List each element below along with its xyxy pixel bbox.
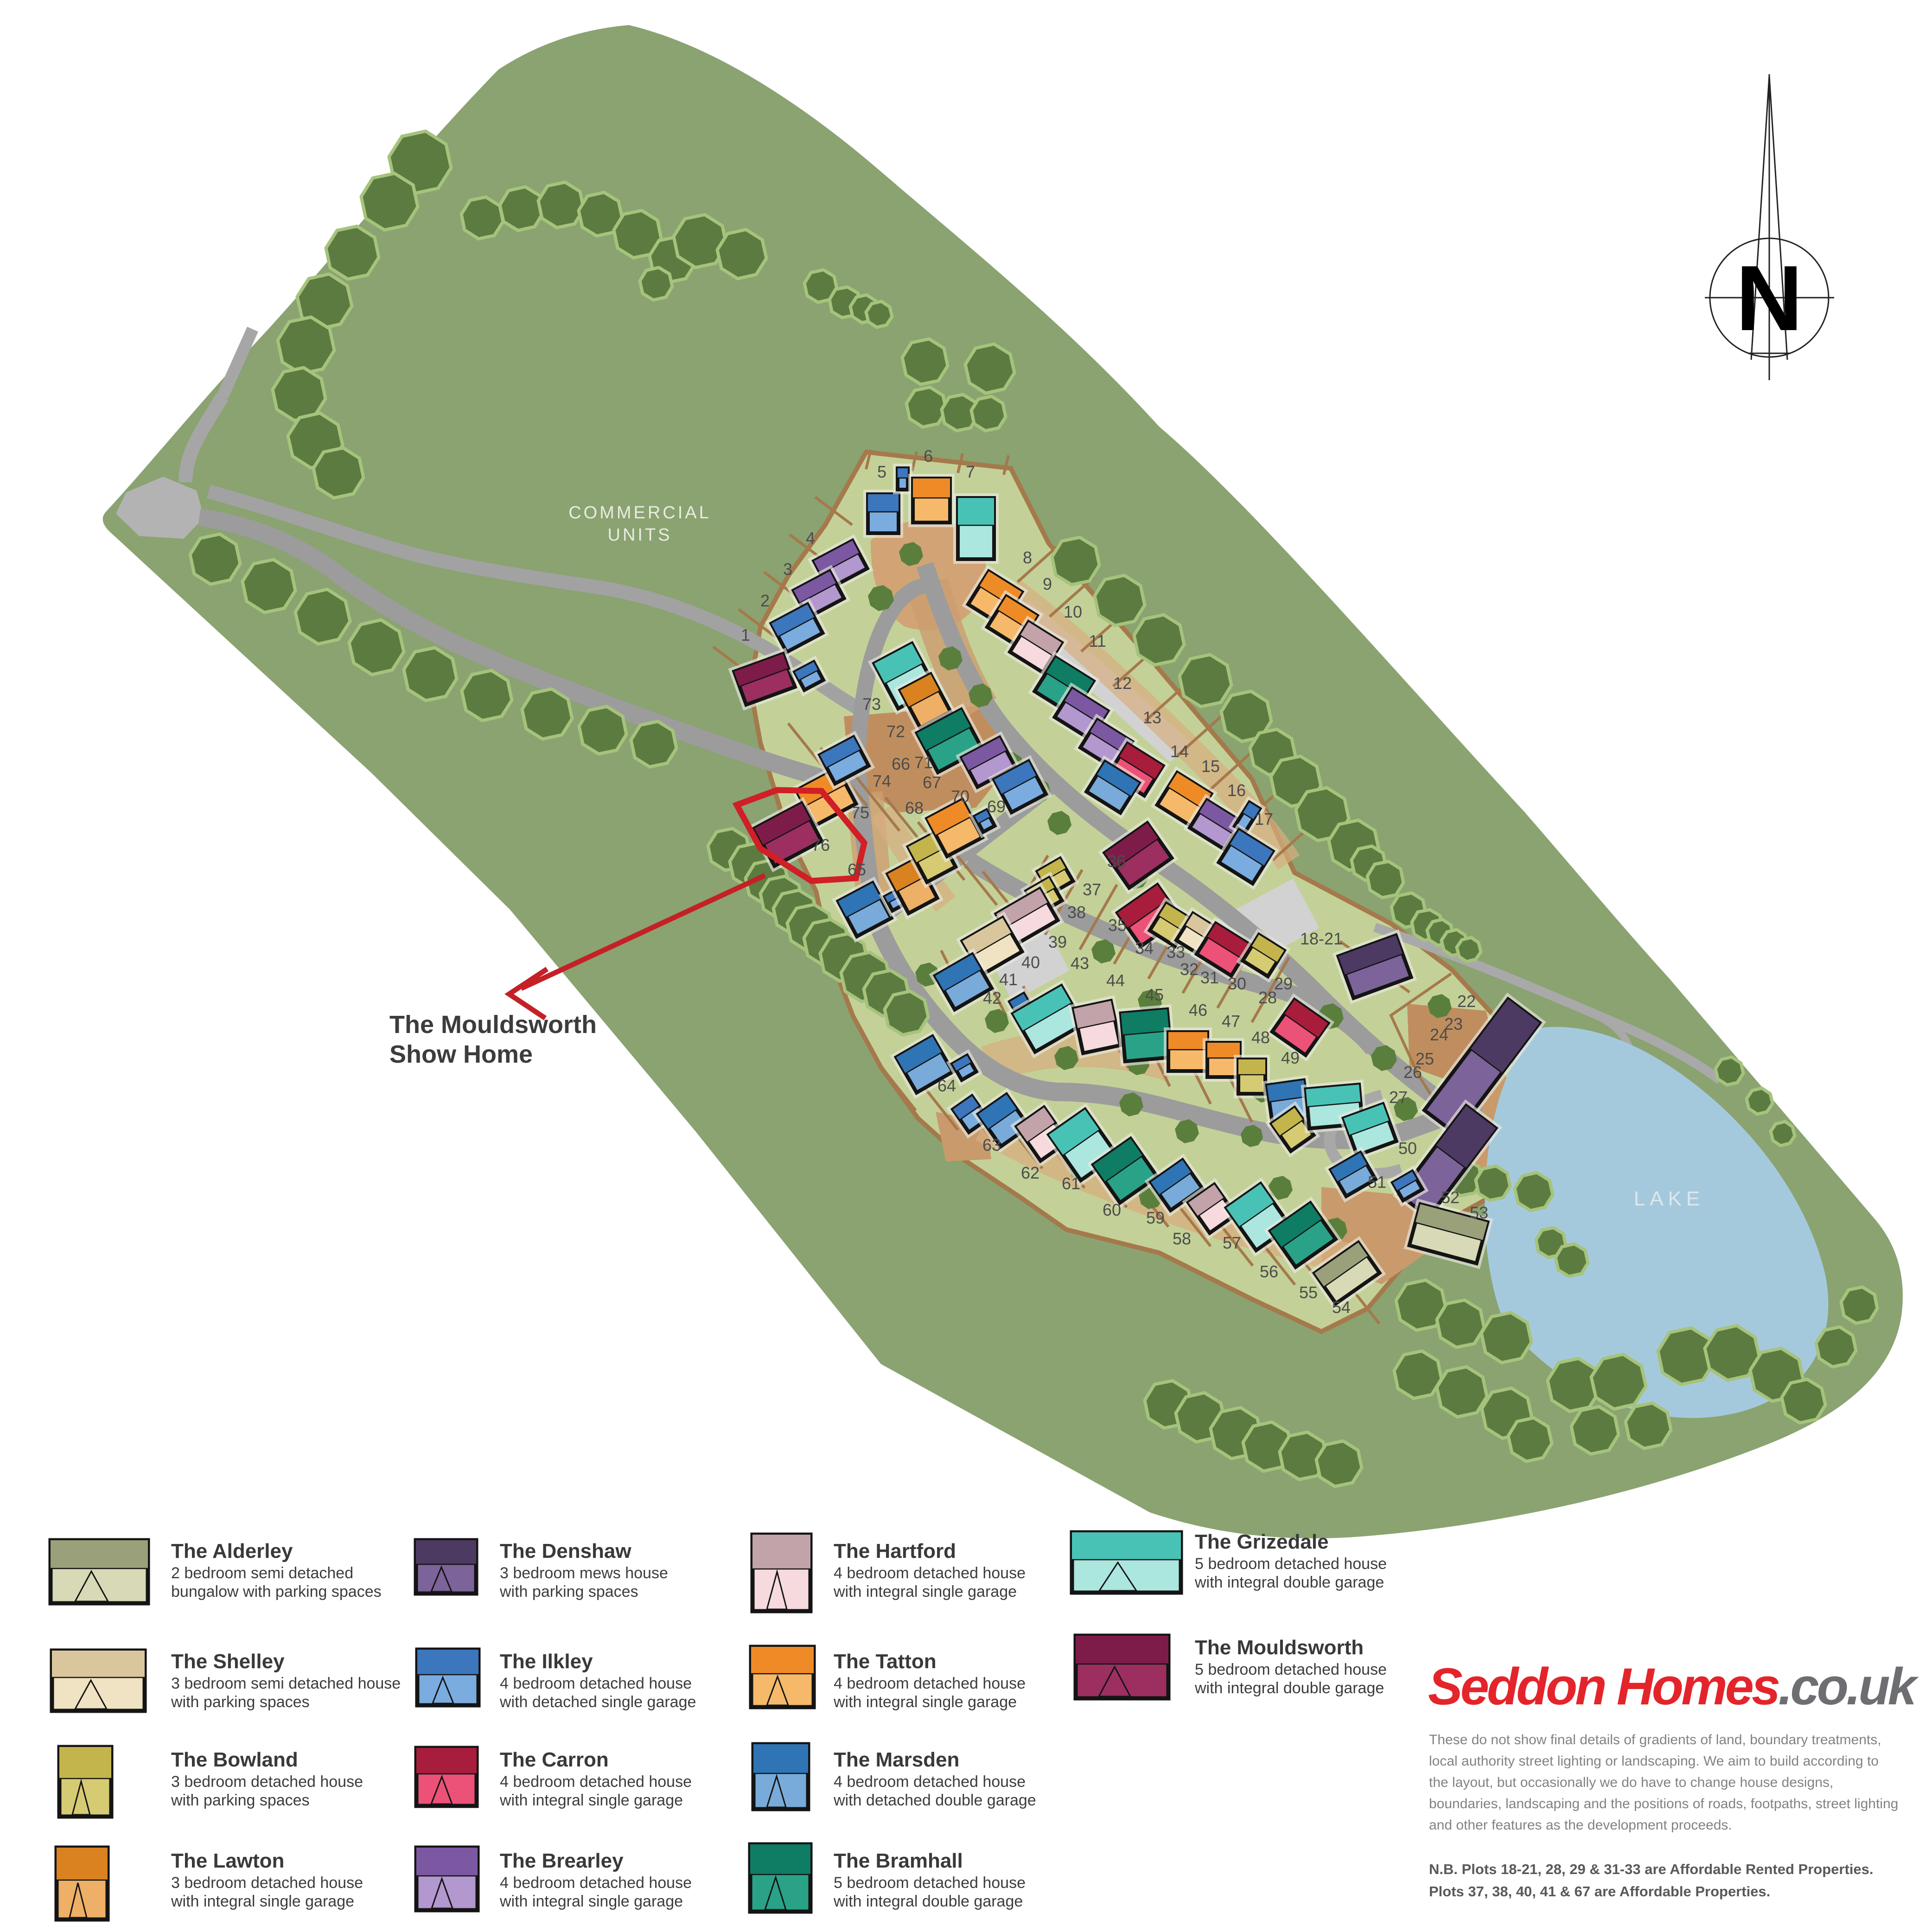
svg-text:9: 9 xyxy=(1043,574,1052,593)
svg-text:3 bedroom detached house: 3 bedroom detached house xyxy=(171,1773,363,1791)
svg-text:3: 3 xyxy=(783,560,792,579)
svg-text:72: 72 xyxy=(886,722,905,741)
svg-text:56: 56 xyxy=(1260,1262,1278,1281)
svg-text:5 bedroom detached house: 5 bedroom detached house xyxy=(834,1874,1026,1892)
svg-text:15: 15 xyxy=(1201,757,1220,776)
svg-text:27: 27 xyxy=(1389,1088,1408,1107)
svg-text:The Hartford: The Hartford xyxy=(834,1540,956,1562)
svg-text:55: 55 xyxy=(1299,1283,1318,1302)
svg-text:with integral double garage: with integral double garage xyxy=(1194,1574,1384,1591)
svg-text:6: 6 xyxy=(924,446,933,465)
svg-text:5 bedroom detached house: 5 bedroom detached house xyxy=(1195,1661,1387,1678)
svg-text:with integral single garage: with integral single garage xyxy=(171,1893,354,1910)
svg-text:38: 38 xyxy=(1067,903,1086,922)
svg-text:4 bedroom detached house: 4 bedroom detached house xyxy=(834,1675,1026,1692)
svg-text:60: 60 xyxy=(1103,1200,1121,1219)
svg-text:43: 43 xyxy=(1071,954,1089,973)
svg-text:46: 46 xyxy=(1189,1001,1207,1020)
svg-text:3 bedroom mews house: 3 bedroom mews house xyxy=(500,1564,668,1582)
svg-text:Plots 37, 38, 40, 41 & 67 are: Plots 37, 38, 40, 41 & 67 are Affordable… xyxy=(1429,1883,1770,1900)
svg-text:48: 48 xyxy=(1251,1028,1270,1047)
svg-text:18-21: 18-21 xyxy=(1300,929,1343,948)
svg-text:bungalow with parking spaces: bungalow with parking spaces xyxy=(171,1583,382,1600)
svg-text:54: 54 xyxy=(1332,1298,1351,1317)
svg-text:30: 30 xyxy=(1228,974,1246,993)
svg-text:57: 57 xyxy=(1223,1233,1241,1252)
svg-text:14: 14 xyxy=(1170,742,1189,761)
svg-text:74: 74 xyxy=(873,772,891,791)
svg-text:The Tatton: The Tatton xyxy=(834,1650,937,1673)
svg-text:with parking spaces: with parking spaces xyxy=(171,1693,310,1711)
svg-text:with integral single garage: with integral single garage xyxy=(499,1792,683,1809)
svg-text:69: 69 xyxy=(987,797,1006,816)
svg-text:65: 65 xyxy=(848,860,866,879)
svg-text:LAKE: LAKE xyxy=(1634,1187,1705,1210)
svg-text:with detached single garage: with detached single garage xyxy=(499,1693,696,1711)
svg-text:The Bramhall: The Bramhall xyxy=(834,1849,963,1872)
svg-text:24: 24 xyxy=(1430,1025,1448,1044)
svg-text:Show Home: Show Home xyxy=(389,1040,533,1068)
svg-text:61: 61 xyxy=(1062,1174,1080,1193)
svg-text:73: 73 xyxy=(862,695,881,714)
svg-text:boundaries, landscaping and th: boundaries, landscaping and the position… xyxy=(1429,1796,1898,1811)
svg-text:with integral single garage: with integral single garage xyxy=(499,1893,683,1910)
svg-text:The Mouldsworth: The Mouldsworth xyxy=(389,1011,597,1039)
svg-text:4 bedroom detached house: 4 bedroom detached house xyxy=(834,1773,1026,1791)
svg-text:4 bedroom detached house: 4 bedroom detached house xyxy=(834,1564,1026,1582)
svg-text:3 bedroom detached house: 3 bedroom detached house xyxy=(171,1874,363,1892)
svg-text:Seddon Homes.co.uk: Seddon Homes.co.uk xyxy=(1428,1658,1919,1715)
svg-text:66: 66 xyxy=(892,754,910,773)
svg-text:31: 31 xyxy=(1200,968,1219,987)
svg-text:64: 64 xyxy=(937,1076,956,1095)
svg-text:with integral double garage: with integral double garage xyxy=(833,1893,1023,1910)
svg-text:34: 34 xyxy=(1135,938,1154,957)
svg-text:4: 4 xyxy=(806,529,815,548)
svg-text:16: 16 xyxy=(1227,781,1246,800)
svg-text:42: 42 xyxy=(983,988,1001,1007)
svg-text:1: 1 xyxy=(741,625,750,644)
svg-text:The Mouldsworth: The Mouldsworth xyxy=(1195,1636,1364,1659)
svg-text:These do not show final detail: These do not show final details of gradi… xyxy=(1429,1732,1881,1747)
svg-text:49: 49 xyxy=(1281,1048,1300,1067)
svg-text:2: 2 xyxy=(760,591,770,610)
svg-text:47: 47 xyxy=(1222,1012,1240,1031)
svg-text:4 bedroom detached house: 4 bedroom detached house xyxy=(500,1675,692,1692)
svg-text:33: 33 xyxy=(1167,943,1185,962)
svg-text:76: 76 xyxy=(811,835,830,854)
svg-text:7: 7 xyxy=(966,462,975,481)
svg-text:and other features as the deve: and other features as the development pr… xyxy=(1429,1817,1732,1833)
svg-text:with integral single garage: with integral single garage xyxy=(833,1583,1017,1600)
svg-text:53: 53 xyxy=(1470,1203,1488,1222)
svg-text:The Alderley: The Alderley xyxy=(171,1540,293,1562)
svg-text:35: 35 xyxy=(1108,916,1127,935)
svg-text:37: 37 xyxy=(1083,880,1101,899)
svg-text:70: 70 xyxy=(951,787,969,806)
svg-text:N: N xyxy=(1736,247,1803,350)
svg-text:The Carron: The Carron xyxy=(500,1748,609,1771)
svg-text:41: 41 xyxy=(999,970,1018,989)
svg-text:the layout, but occasionally w: the layout, but occasionally we do have … xyxy=(1429,1775,1833,1790)
svg-text:45: 45 xyxy=(1145,985,1164,1004)
svg-text:58: 58 xyxy=(1173,1229,1191,1248)
svg-text:with integral double garage: with integral double garage xyxy=(1194,1679,1384,1697)
svg-text:75: 75 xyxy=(851,803,869,822)
svg-text:The Lawton: The Lawton xyxy=(171,1849,284,1872)
svg-text:11: 11 xyxy=(1089,631,1106,650)
svg-text:with parking spaces: with parking spaces xyxy=(171,1792,310,1809)
svg-text:The Ilkley: The Ilkley xyxy=(500,1650,593,1673)
svg-text:5 bedroom detached house: 5 bedroom detached house xyxy=(1195,1555,1387,1573)
svg-text:COMMERCIAL: COMMERCIAL xyxy=(568,503,711,523)
svg-text:59: 59 xyxy=(1146,1208,1165,1227)
svg-text:local authority street lightin: local authority street lighting or lands… xyxy=(1429,1753,1879,1769)
svg-text:63: 63 xyxy=(982,1135,1001,1154)
svg-text:39: 39 xyxy=(1048,932,1067,951)
svg-text:71: 71 xyxy=(914,753,933,772)
svg-text:The Shelley: The Shelley xyxy=(171,1650,285,1673)
svg-text:4 bedroom detached house: 4 bedroom detached house xyxy=(500,1773,692,1791)
svg-text:50: 50 xyxy=(1398,1139,1417,1158)
svg-text:26: 26 xyxy=(1403,1063,1422,1082)
svg-text:12: 12 xyxy=(1113,674,1132,693)
svg-text:The Denshaw: The Denshaw xyxy=(500,1540,631,1562)
svg-text:67: 67 xyxy=(923,773,941,792)
svg-text:UNITS: UNITS xyxy=(608,525,672,545)
svg-text:51: 51 xyxy=(1368,1173,1386,1192)
svg-text:44: 44 xyxy=(1106,971,1125,990)
svg-text:3 bedroom semi detached house: 3 bedroom semi detached house xyxy=(171,1675,401,1692)
svg-text:10: 10 xyxy=(1064,602,1082,621)
svg-text:13: 13 xyxy=(1143,708,1161,727)
svg-text:22: 22 xyxy=(1457,992,1476,1011)
svg-text:with parking spaces: with parking spaces xyxy=(499,1583,638,1600)
svg-text:with detached double garage: with detached double garage xyxy=(833,1792,1036,1809)
svg-text:The Marsden: The Marsden xyxy=(834,1748,959,1771)
svg-text:N.B. Plots 18-21, 28, 29 & 31-: N.B. Plots 18-21, 28, 29 & 31-33 are Aff… xyxy=(1429,1861,1873,1877)
svg-text:The Bowland: The Bowland xyxy=(171,1748,298,1771)
svg-text:52: 52 xyxy=(1441,1188,1460,1207)
svg-text:8: 8 xyxy=(1023,548,1032,567)
svg-text:The Grizedale: The Grizedale xyxy=(1195,1530,1329,1553)
svg-text:32: 32 xyxy=(1180,960,1199,979)
svg-text:68: 68 xyxy=(905,798,924,817)
svg-text:2 bedroom semi detached: 2 bedroom semi detached xyxy=(171,1564,353,1582)
svg-text:The Brearley: The Brearley xyxy=(500,1849,624,1872)
svg-text:36: 36 xyxy=(1107,852,1126,871)
svg-text:4 bedroom detached house: 4 bedroom detached house xyxy=(500,1874,692,1892)
svg-text:with integral single garage: with integral single garage xyxy=(833,1693,1017,1711)
svg-text:17: 17 xyxy=(1255,810,1273,829)
svg-text:62: 62 xyxy=(1021,1163,1039,1182)
svg-text:40: 40 xyxy=(1021,953,1040,972)
svg-text:29: 29 xyxy=(1274,974,1293,993)
svg-text:5: 5 xyxy=(877,462,886,481)
